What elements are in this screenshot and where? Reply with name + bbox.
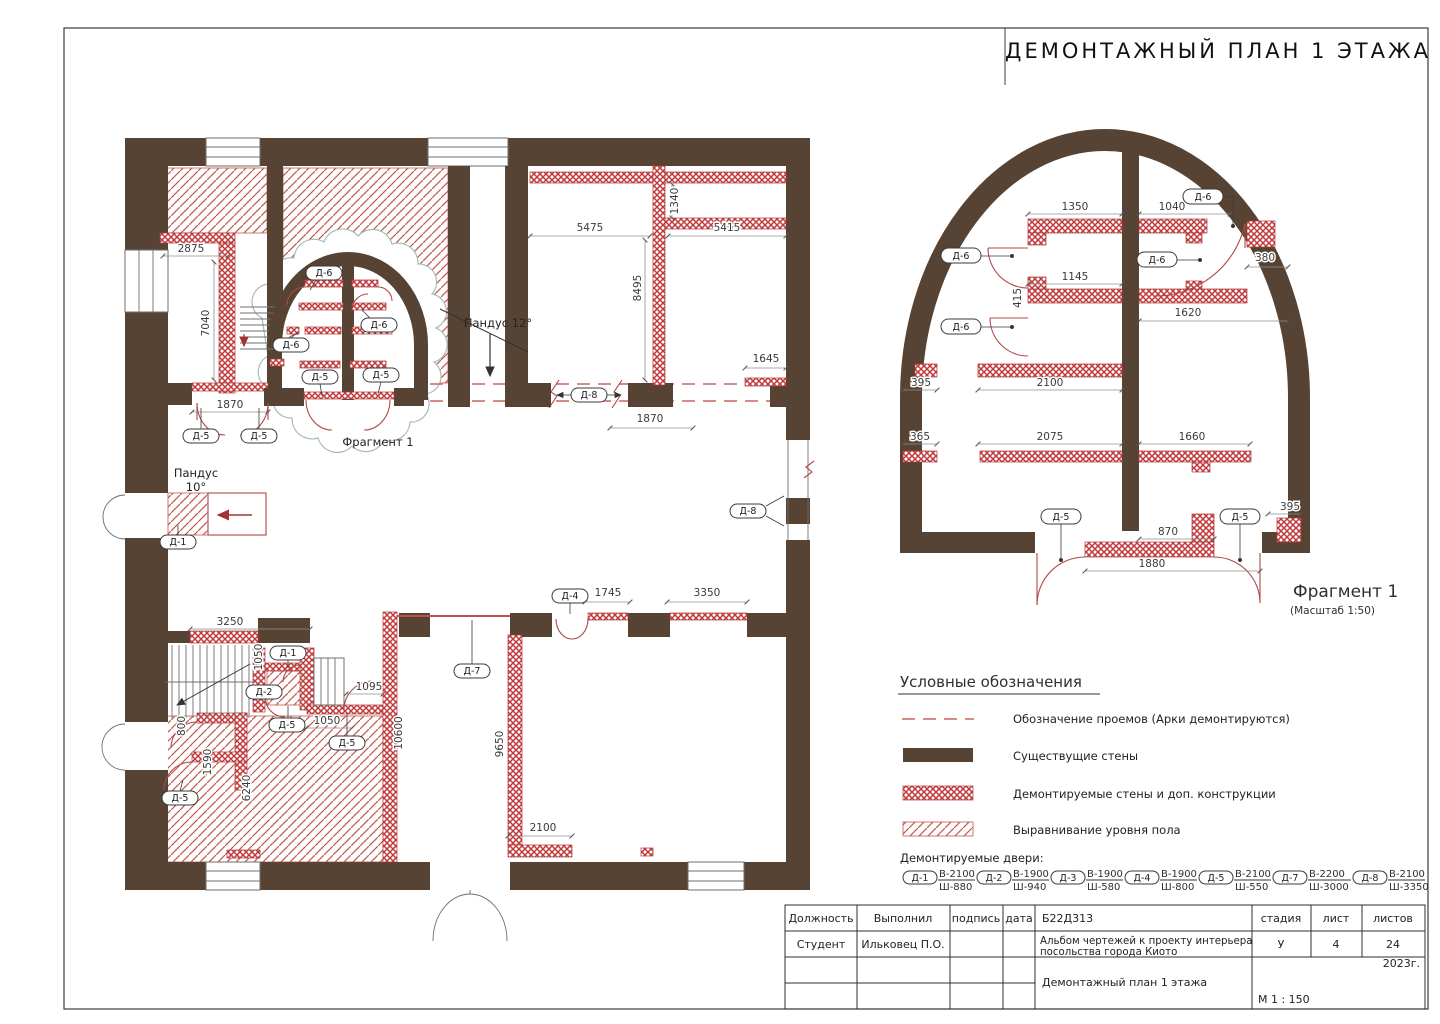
door-spec-height: В-1900 [1161,869,1197,880]
tag-d5: Д-5 [373,370,390,381]
legend-door-specs: Д-1 В-2100 Ш-880 Д-2 В-1900 Ш-940 Д-3 В-… [903,869,1429,893]
door-spec-width: Ш-580 [1087,882,1120,893]
tag-d8: Д-8 [740,506,757,517]
door-spec-tag: Д-2 [986,873,1003,884]
ramp-10 [168,493,266,535]
tag-d7: Д-7 [464,666,481,677]
tb-header-role: Должность [788,912,853,925]
dim-1050a: 1050 [253,644,265,671]
fdim-1040: 1040 [1159,201,1186,213]
dim-6240: 6240 [241,775,253,802]
dim-5415: 5415 [714,222,741,234]
dim-1745: 1745 [595,587,622,599]
tb-scale: М 1 : 150 [1258,993,1310,1006]
fdim-365: 365 [910,431,930,443]
tb-header-date: дата [1005,912,1033,925]
demolition-plan-svg: ДЕМОНТАЖНЫЙ ПЛАН 1 ЭТАЖА [0,0,1440,1020]
tag-d6: Д-6 [1149,255,1166,266]
fdim-415: 415 [1012,288,1024,308]
fdim-1880: 1880 [1139,558,1166,570]
drawing-sheet: ДЕМОНТАЖНЫЙ ПЛАН 1 ЭТАЖА [0,0,1440,1020]
fdim-870: 870 [1158,526,1178,538]
fragment-title: Фрагмент 1 [1293,582,1398,602]
tag-d6: Д-6 [283,340,300,351]
tag-d8: Д-8 [581,390,598,401]
tb-project-line2: посольства города Киото [1040,947,1177,958]
dim-1870a: 1870 [217,399,244,411]
door-spec-width: Ш-3000 [1309,882,1349,893]
fdim-380: 380 [1255,252,1275,264]
legend: Условные обозначения Обозначение проемов… [898,673,1429,893]
ramp-10-label-line2: 10° [186,480,206,494]
ramp-12-label: Пандус 12° [464,316,532,330]
tag-d1: Д-1 [280,648,297,659]
tag-d2: Д-2 [256,687,273,698]
tag-d5: Д-5 [172,793,189,804]
fdim-1660: 1660 [1179,431,1206,443]
dim-2100: 2100 [530,822,557,834]
fragment-arch-wall [911,140,1299,543]
fragment-reference-label: Фрагмент 1 [342,435,413,449]
tag-d5: Д-5 [339,738,356,749]
dim-2875: 2875 [178,243,205,255]
dim-1590: 1590 [202,749,214,776]
tb-header-signature: подпись [952,912,1000,925]
dim-7040: 7040 [200,310,212,337]
fdim-395b: 395 [1280,501,1300,513]
legend-title: Условные обозначения [900,673,1082,691]
tb-header-stage: стадия [1261,912,1302,925]
legend-item-demolished-walls: Демонтируемые стены и доп. конструкции [1013,787,1276,801]
door-spec-width: Ш-800 [1161,882,1194,893]
dim-9650: 9650 [494,731,506,758]
legend-swatch-floor-leveling [903,822,973,836]
fragment-subtitle: (Масштаб 1:50) [1290,605,1375,617]
door-spec-width: Ш-940 [1013,882,1046,893]
tag-d5: Д-5 [193,431,210,442]
tb-stage-value: У [1278,938,1285,951]
dim-5475: 5475 [577,222,604,234]
fdim-1620: 1620 [1175,307,1202,319]
door-spec-tag: Д-7 [1282,873,1299,884]
tb-sheet-value: 4 [1333,938,1340,951]
door-spec-height: В-2200 [1309,869,1345,880]
title-block: Должность Выполнил подпись дата Б22Д313 … [785,905,1425,1009]
dim-1645: 1645 [753,353,780,365]
legend-swatch-existing-wall [903,748,973,762]
door-spec-height: В-2100 [1389,869,1425,880]
dim-1870b: 1870 [637,413,664,425]
door-spec-tag: Д-1 [912,873,929,884]
fdim-1145: 1145 [1062,271,1089,283]
legend-item-floor-leveling: Выравнивание уровня пола [1013,823,1181,837]
tb-year: 2023г. [1383,957,1420,970]
tb-header-sheets: листов [1373,912,1413,925]
page-title: ДЕМОНТАЖНЫЙ ПЛАН 1 ЭТАЖА [1005,38,1431,63]
door-spec-height: В-2100 [1235,869,1271,880]
fragment-detail: 1350 1040 380 1145 415 1620 395 2100 365… [900,140,1398,617]
tag-d1: Д-1 [170,537,187,548]
dim-1340: 1340 [669,188,681,215]
main-plan: 2875 7040 1870 5475 5415 1340 8495 1645 … [102,138,814,941]
tag-d6: Д-6 [1195,192,1212,203]
tb-header-sheet: лист [1323,912,1350,925]
door-spec-tag: Д-4 [1134,873,1151,884]
tag-d5: Д-5 [279,720,296,731]
arcade-dashed-opening [430,380,786,408]
fdim-2100: 2100 [1037,377,1064,389]
legend-item-existing-walls: Существущие стены [1013,749,1138,763]
legend-swatch-demolished-wall [903,786,973,800]
door-spec-height: В-2100 [939,869,975,880]
door-spec-width: Ш-3350 [1389,882,1429,893]
door-spec-width: Ш-880 [939,882,972,893]
tb-performed-value: Ильковец П.О. [861,938,944,951]
ramp-10-label-line1: Пандус [174,466,218,480]
door-spec-tag: Д-3 [1060,873,1077,884]
dim-800: 800 [176,716,188,736]
fdim-395a: 395 [911,377,931,389]
door-spec-height: В-1900 [1087,869,1123,880]
tb-sheets-value: 24 [1386,938,1400,951]
door-spec-width: Ш-550 [1235,882,1268,893]
tag-d5: Д-5 [1232,512,1249,523]
tb-header-performed: Выполнил [874,912,933,925]
dim-1050b: 1050 [314,715,341,727]
dim-10600: 10600 [393,716,405,749]
tag-d5: Д-5 [1053,512,1070,523]
dim-3250: 3250 [217,616,244,628]
legend-item-openings: Обозначение проемов (Арки демонтируются) [1013,712,1290,726]
tb-drawing-title: Демонтажный план 1 этажа [1042,976,1207,989]
tb-code: Б22Д313 [1042,912,1093,925]
tag-d6: Д-6 [316,268,333,279]
door-spec-height: В-1900 [1013,869,1049,880]
tag-d6: Д-6 [953,251,970,262]
tag-d6: Д-6 [953,322,970,333]
dim-8495: 8495 [632,275,644,302]
legend-doors-title: Демонтируемые двери: [900,851,1044,865]
dim-1095: 1095 [356,681,383,693]
tag-d5: Д-5 [251,431,268,442]
door-spec-tag: Д-5 [1208,873,1225,884]
tag-d4: Д-4 [562,591,579,602]
tag-d6: Д-6 [371,320,388,331]
tb-project-line1: Альбом чертежей к проекту интерьера [1040,936,1253,947]
tag-d5: Д-5 [312,372,329,383]
fdim-1350: 1350 [1062,201,1089,213]
dim-3350: 3350 [694,587,721,599]
tb-role-value: Студент [797,938,846,951]
fdim-2075: 2075 [1037,431,1064,443]
door-spec-tag: Д-8 [1362,873,1379,884]
